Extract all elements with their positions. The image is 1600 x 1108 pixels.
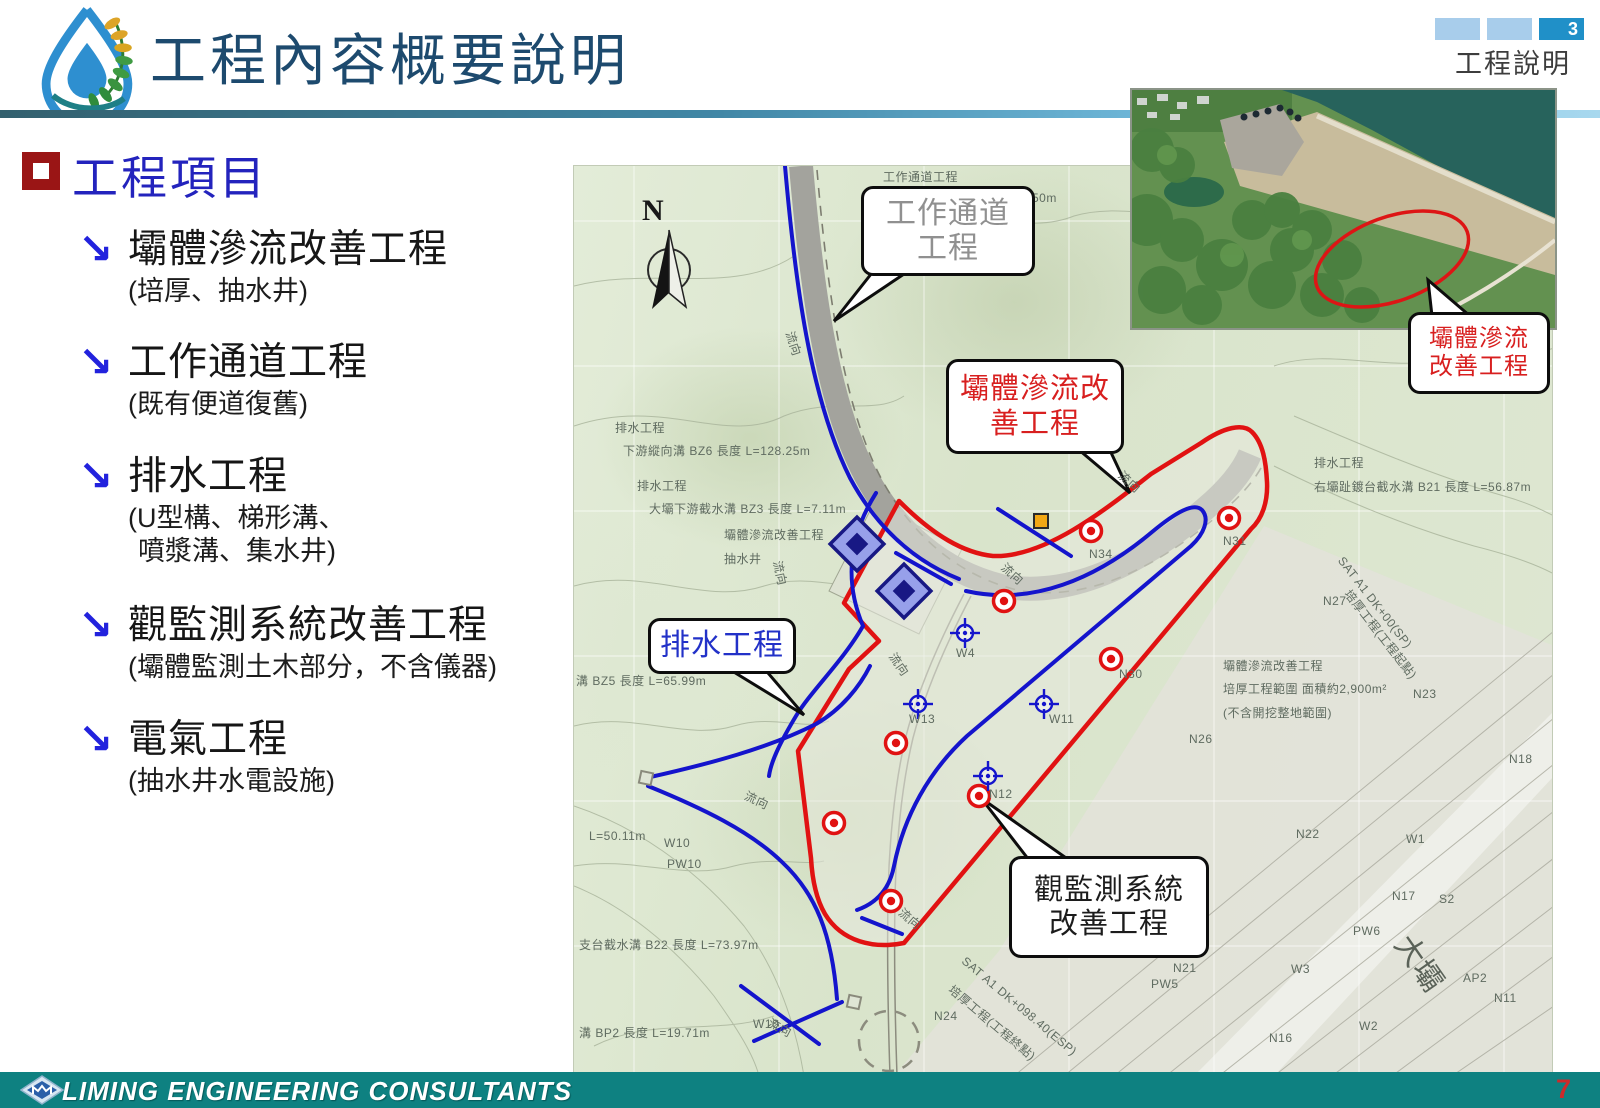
orange-marker-icon bbox=[1034, 514, 1048, 528]
map-label: L=50.11m bbox=[589, 829, 646, 843]
map-label: N23 bbox=[1413, 687, 1437, 701]
callout-photo-seepage: 壩體滲流 改善工程 bbox=[1408, 312, 1550, 394]
page-title: 工程內容概要說明 bbox=[150, 16, 630, 97]
map-label: 排水工程 bbox=[1314, 454, 1364, 471]
map-label: W3 bbox=[1291, 962, 1310, 976]
map-label: 溝 BZ5 長度 L=65.99m bbox=[576, 672, 706, 689]
map-label: N11 bbox=[1494, 991, 1517, 1005]
map-label: N31 bbox=[1223, 534, 1247, 548]
map-label: W4 bbox=[956, 646, 975, 660]
map-label: 右壩趾鍍台截水溝 B21 長度 L=56.87m bbox=[1314, 478, 1531, 495]
callout-text: 改善工程 bbox=[1049, 907, 1169, 941]
monitoring-target-icon bbox=[969, 786, 990, 807]
map-label: W1 bbox=[1406, 832, 1425, 846]
item-subtitle-2: 噴漿溝、集水井) bbox=[138, 536, 346, 567]
north-label: N bbox=[642, 194, 664, 228]
map-label: 培厚工程範圍 面積約2,900m² bbox=[1223, 680, 1387, 697]
consultant-logo-icon bbox=[20, 1075, 64, 1105]
map-label: 壩體滲流改善工程 bbox=[1223, 657, 1323, 674]
footer-bar: LIMING ENGINEERING CONSULTANTS bbox=[0, 1072, 1600, 1108]
square-bullet-icon bbox=[22, 152, 60, 190]
map-label: N17 bbox=[1392, 889, 1416, 903]
channel-end-marker-icon bbox=[847, 995, 861, 1009]
callout-text: 工作通道 bbox=[886, 196, 1010, 231]
callout-monitoring: 觀監測系統 改善工程 bbox=[1009, 856, 1209, 958]
item-title: 壩體滲流改善工程 bbox=[128, 228, 448, 273]
callout-text: 壩體滲流 bbox=[1429, 325, 1529, 353]
monitoring-target-icon bbox=[1081, 521, 1102, 542]
map-label: 排水工程 bbox=[615, 419, 665, 436]
list-item-seepage: ↘ 壩體滲流改善工程 (培厚、抽水井) bbox=[78, 228, 448, 306]
monitoring-target-icon bbox=[1219, 508, 1240, 529]
section-label: 工程說明 bbox=[1455, 42, 1571, 81]
map-label: N24 bbox=[934, 1009, 958, 1023]
arrow-bullet-icon: ↘ bbox=[78, 228, 113, 270]
map-label: N27 bbox=[1323, 594, 1347, 608]
list-heading-text: 工程項目 bbox=[72, 142, 268, 208]
map-label: 抽水井 bbox=[724, 550, 762, 567]
list-item-work-road: ↘ 工作通道工程 (既有便道復舊) bbox=[78, 341, 368, 419]
map-label: 溝 BP2 長度 L=19.71m bbox=[579, 1024, 710, 1041]
map-label: PW6 bbox=[1353, 924, 1381, 938]
callout-text: 壩體滲流改 bbox=[960, 372, 1110, 406]
monitoring-target-icon bbox=[824, 813, 845, 834]
item-subtitle: (培厚、抽水井) bbox=[128, 276, 448, 307]
item-subtitle: (既有便道復舊) bbox=[128, 389, 368, 420]
map-label: N16 bbox=[1269, 1031, 1293, 1045]
map-label: PW5 bbox=[1151, 977, 1179, 991]
monitoring-target-icon bbox=[881, 891, 902, 912]
map-label: W11 bbox=[1049, 712, 1074, 726]
callout-text: 排水工程 bbox=[660, 628, 784, 663]
north-arrow-icon bbox=[648, 230, 690, 309]
section-progress-tabs: 3 bbox=[1435, 18, 1584, 40]
callout-text: 工程 bbox=[917, 231, 979, 266]
arrow-bullet-icon: ↘ bbox=[78, 718, 113, 760]
map-label: N12 bbox=[989, 787, 1013, 801]
item-title: 工作通道工程 bbox=[128, 341, 368, 386]
arrow-bullet-icon: ↘ bbox=[78, 341, 113, 383]
map-label: W13 bbox=[909, 712, 935, 726]
map-label: N34 bbox=[1089, 547, 1113, 561]
item-title: 排水工程 bbox=[128, 455, 346, 500]
map-label: (不含開挖整地範圍) bbox=[1223, 704, 1332, 721]
list-heading: 工程項目 bbox=[22, 142, 268, 208]
tab-box-2 bbox=[1487, 18, 1532, 40]
map-label: N21 bbox=[1173, 961, 1197, 975]
arrow-bullet-icon: ↘ bbox=[78, 455, 113, 497]
map-label: 大壩下游截水溝 BZ3 長度 L=7.11m bbox=[649, 500, 846, 517]
map-label: 壩體滲流改善工程 bbox=[724, 526, 824, 543]
item-subtitle: (抽水井水電設施) bbox=[128, 766, 335, 797]
map-label: N30 bbox=[1119, 667, 1143, 681]
monitoring-target-icon bbox=[994, 591, 1015, 612]
tab-box-1 bbox=[1435, 18, 1480, 40]
map-label: W2 bbox=[1359, 1019, 1378, 1033]
list-item-electrical: ↘ 電氣工程 (抽水井水電設施) bbox=[78, 718, 335, 796]
map-label: AP2 bbox=[1463, 971, 1487, 985]
list-item-monitoring: ↘ 觀監測系統改善工程 (壩體監測土木部分，不含儀器) bbox=[78, 604, 497, 682]
tab-box-active: 3 bbox=[1539, 18, 1584, 40]
water-wheat-logo-icon bbox=[28, 2, 146, 114]
callout-text: 善工程 bbox=[990, 407, 1080, 441]
list-item-drainage: ↘ 排水工程 (U型構、梯形溝、 噴漿溝、集水井) bbox=[78, 455, 346, 567]
map-label: W10 bbox=[664, 836, 690, 850]
map-label: 下游縱向溝 BZ6 長度 L=128.25m bbox=[623, 442, 810, 459]
channel-end-marker-icon bbox=[639, 771, 653, 785]
callout-text: 改善工程 bbox=[1429, 353, 1529, 381]
aerial-photo-graphic bbox=[1132, 90, 1555, 328]
slide: 工程內容概要說明 3 工程說明 工程項目 ↘ 壩體滲流改善工程 (培厚、抽水井)… bbox=[0, 0, 1600, 1108]
map-label: N26 bbox=[1189, 732, 1213, 746]
map-label: 支台截水溝 B22 長度 L=73.97m bbox=[579, 936, 759, 953]
page-number: 7 bbox=[1556, 1074, 1571, 1105]
company-name: LIMING ENGINEERING CONSULTANTS bbox=[62, 1076, 572, 1107]
map-label: N22 bbox=[1296, 827, 1320, 841]
item-subtitle: (壩體監測土木部分，不含儀器) bbox=[128, 652, 497, 683]
map-label: N18 bbox=[1509, 752, 1533, 766]
monitoring-target-icon bbox=[886, 733, 907, 754]
item-title: 觀監測系統改善工程 bbox=[128, 604, 497, 649]
callout-text: 觀監測系統 bbox=[1034, 873, 1184, 907]
map-label: PW10 bbox=[667, 857, 702, 871]
map-label: S2 bbox=[1439, 892, 1455, 906]
map-label: 排水工程 bbox=[637, 477, 687, 494]
item-subtitle: (U型構、梯形溝、 bbox=[128, 503, 346, 534]
arrow-bullet-icon: ↘ bbox=[78, 604, 113, 646]
callout-seepage: 壩體滲流改 善工程 bbox=[946, 359, 1124, 454]
item-title: 電氣工程 bbox=[128, 718, 335, 763]
map-label: 工作通道工程 bbox=[883, 168, 958, 185]
callout-drainage: 排水工程 bbox=[648, 618, 796, 674]
callout-work-road: 工作通道 工程 bbox=[861, 186, 1035, 276]
aerial-photo bbox=[1130, 88, 1557, 330]
